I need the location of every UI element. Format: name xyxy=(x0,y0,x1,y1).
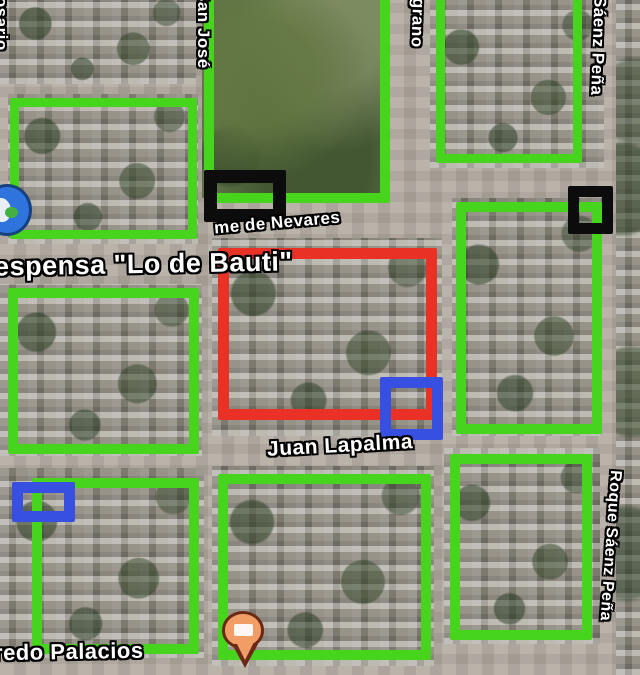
pin-tip-fill xyxy=(237,644,253,660)
street-label-saenz-pena: Sáenz Peña xyxy=(587,0,608,96)
leaf-icon xyxy=(5,207,18,218)
green-box-top-right xyxy=(436,0,582,163)
street-label-rosario: Rosario xyxy=(0,0,10,51)
black-box-top-right xyxy=(568,186,613,234)
green-box-top-left xyxy=(10,98,197,239)
city-block-top-left-upper xyxy=(0,0,196,84)
blue-box-bottom-left xyxy=(12,482,75,522)
poi-label-despensa[interactable]: espensa "Lo de Bauti" xyxy=(0,247,293,281)
orange-map-pin[interactable] xyxy=(222,611,268,675)
satellite-map[interactable]: RosarioSan JoséBelgranoSáenz Peñame de N… xyxy=(0,0,640,675)
green-box-mid-left xyxy=(8,288,199,454)
street-label-san-jose: San José xyxy=(194,0,212,69)
city-block-right-column xyxy=(616,0,640,675)
street-label-juan-lapalma: Juan Lapalma xyxy=(267,431,414,461)
street-label-alfredo-palacios: redo Palacios xyxy=(0,639,144,665)
shop-icon xyxy=(234,624,253,636)
green-box-mid-right xyxy=(456,202,602,434)
street-label-belgrano: Belgrano xyxy=(408,0,429,48)
green-box-bottom-right xyxy=(450,454,592,640)
